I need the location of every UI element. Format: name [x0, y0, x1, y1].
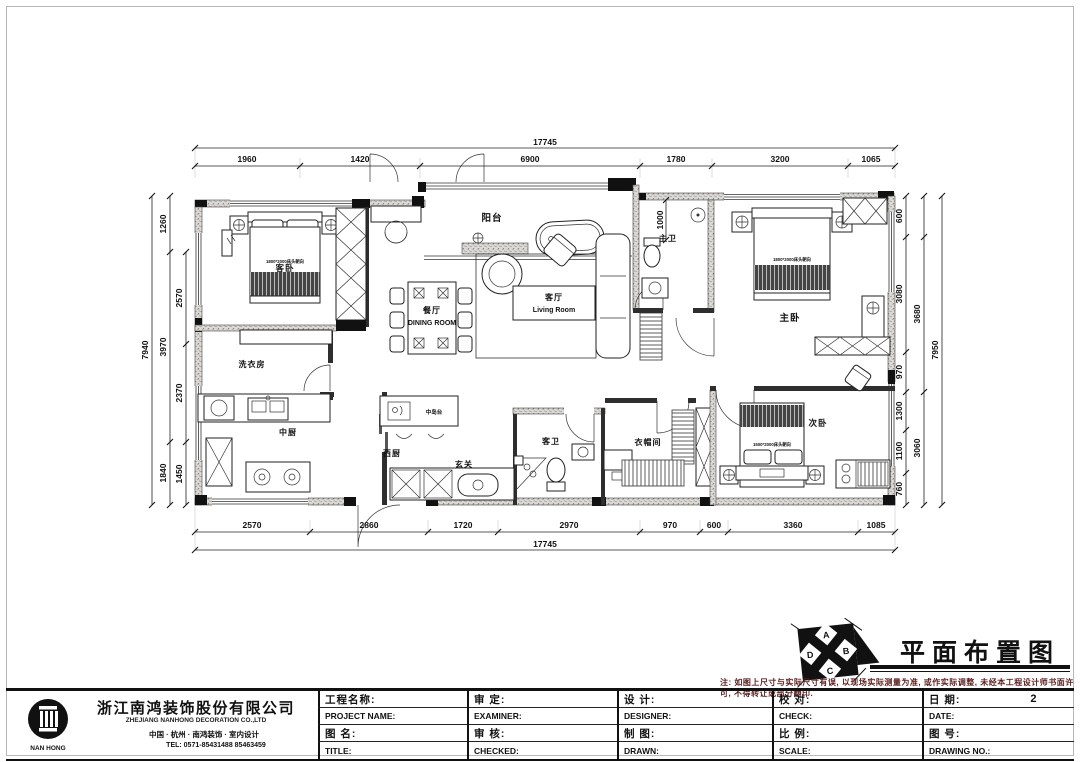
- dim-label: 3080: [894, 284, 904, 303]
- dim-label: 970: [894, 365, 904, 379]
- island-label: 中岛台: [426, 408, 443, 416]
- floor-plan: 阳台 1800*2000床头朝向 客卧: [0, 0, 1080, 690]
- field-designer-en: DESIGNER:: [617, 708, 772, 725]
- dim-label: 1260: [158, 214, 168, 233]
- dim-label: 1780: [667, 154, 686, 164]
- dim-label: 2970: [560, 520, 579, 530]
- company-address: 中国 · 杭州 · 南鸿装饰 · 室内设计: [92, 729, 316, 740]
- dim-label: 1450: [174, 464, 184, 483]
- laundry-label: 洗衣房: [239, 359, 266, 369]
- dim-label: 7950: [930, 340, 940, 359]
- field-title-cn: 图 名:: [318, 725, 467, 742]
- balcony-label: 阳台: [481, 212, 502, 224]
- field-designer-cn: 设 计:: [617, 691, 772, 708]
- balcony-door-arc: [456, 154, 484, 182]
- planter: [462, 243, 528, 254]
- dimension-chain-bottom: 2570 2860 1720 2970 970 600 3360 1085 17…: [192, 505, 898, 553]
- dim-label: 760: [894, 482, 904, 496]
- second-bedroom: 1500*2000床头朝向 次卧: [720, 403, 890, 488]
- dim-label: 3970: [158, 337, 168, 356]
- field-date-cn: 日 期:2: [922, 691, 1074, 708]
- dim-label: 7940: [140, 340, 150, 359]
- field-examiner-en: EXAMINER:: [467, 708, 617, 725]
- company-tel: TEL: 0571-85431488 85463459: [116, 742, 316, 749]
- dim-label: 600: [707, 520, 721, 530]
- dim-label: 2370: [174, 383, 184, 402]
- dim-label: 1085: [867, 520, 886, 530]
- guest-bath-label: 客卫: [541, 436, 560, 446]
- field-title-en: TITLE:: [318, 742, 467, 759]
- dim-label: 3200: [771, 154, 790, 164]
- field-project-name-en: PROJECT NAME:: [318, 708, 467, 725]
- field-scale-en: SCALE:: [772, 742, 922, 759]
- dim-label: 3360: [784, 520, 803, 530]
- master-bath: 主卫 1000: [642, 197, 705, 298]
- cloakroom-label: 衣帽间: [635, 437, 662, 447]
- dim-label: 1960: [238, 154, 257, 164]
- title-block-table: 工程名称: 审 定: 设 计: 校 对: 日 期:2 PROJECT NAME:…: [318, 691, 1074, 759]
- dim-label: 1720: [454, 520, 473, 530]
- company-panel: NAN HONG 浙江南鸿装饰股份有限公司 ZHEJIANG NANHONG D…: [6, 691, 318, 759]
- field-project-name-cn: 工程名称:: [318, 691, 467, 708]
- dim-label: 600: [894, 209, 904, 223]
- dining-room: 餐厅 DINING ROOM: [390, 282, 472, 354]
- dim-label: 1065: [862, 154, 881, 164]
- master-bed-note: 1800*2000床头朝向: [773, 256, 811, 263]
- dim-label: 1840: [158, 463, 168, 482]
- field-check-cn: 校 对:: [772, 691, 922, 708]
- master-bedroom: 1800*2000床头朝向 主卧: [732, 198, 890, 392]
- drawing-sheet: 阳台 1800*2000床头朝向 客卧: [0, 0, 1080, 762]
- field-checked-cn: 审 核:: [467, 725, 617, 742]
- dim-label: 3680: [912, 304, 922, 323]
- guest-bath: 客卫: [514, 436, 594, 491]
- balcony-door-arc: [370, 154, 398, 182]
- compass-flag: [854, 625, 880, 665]
- dim-label: 1100: [894, 442, 904, 461]
- field-date-en: DATE:: [922, 708, 1074, 725]
- second-bedroom-label: 次卧: [808, 418, 827, 428]
- dim-label: 3060: [912, 438, 922, 457]
- dim-label: 2860: [360, 520, 379, 530]
- field-check-en: CHECK:: [772, 708, 922, 725]
- field-scale-cn: 比 例:: [772, 725, 922, 742]
- dim-label: 1420: [351, 154, 370, 164]
- field-date-label: 日 期:: [929, 692, 960, 707]
- dim-label: 2570: [174, 288, 184, 307]
- western-kitchen: 中岛台 西厨: [380, 396, 514, 500]
- company-name-cn: 浙江南鸿装饰股份有限公司: [76, 697, 316, 718]
- dining-label-cn: 餐厅: [422, 305, 441, 315]
- title-block: NAN HONG 浙江南鸿装饰股份有限公司 ZHEJIANG NANHONG D…: [6, 688, 1074, 761]
- master-bedroom-label: 主卧: [779, 312, 800, 324]
- company-name-en: ZHEJIANG NANHONG DECORATION CO.,LTD: [76, 717, 316, 724]
- field-checked-en: CHECKED:: [467, 742, 617, 759]
- second-bed-note: 1500*2000床头朝向: [753, 441, 791, 448]
- living-label-en: Living Room: [533, 307, 575, 314]
- dining-label-en: DINING ROOM: [408, 320, 456, 327]
- dim-total-top: 17745: [533, 137, 557, 147]
- company-logo: NAN HONG: [22, 697, 74, 755]
- dimension-chain-right: 600 3080 970 1300 1100 760 3680 3060 795…: [894, 193, 945, 508]
- field-drawn-en: DRAWN:: [617, 742, 772, 759]
- field-drawing-no-cn: 图 号:: [922, 725, 1074, 742]
- title-underline-thick: [870, 665, 1070, 669]
- logo-text: NAN HONG: [30, 745, 65, 752]
- field-drawing-no-en: DRAWING NO.:: [922, 742, 1074, 759]
- dimension-chain-top: 1960 1420 6900 1780 3200 1065 17745: [192, 137, 898, 178]
- guest-bedroom-label: 客卧: [274, 263, 294, 273]
- laundry-room: 洗衣房: [239, 330, 333, 369]
- dim-label: 6900: [521, 154, 540, 164]
- dimension-chain-left: 7940 1260 3970 1840 2570 2370 1450: [140, 193, 189, 508]
- date-value: 2: [1030, 693, 1037, 705]
- dim-label: 2570: [243, 520, 262, 530]
- living-label-cn: 客厅: [544, 292, 563, 302]
- foyer-label: 玄关: [455, 459, 473, 469]
- drawing-title: 平面布置图: [900, 633, 1060, 669]
- field-examiner-cn: 审 定:: [467, 691, 617, 708]
- dim-label: 970: [663, 520, 677, 530]
- title-underline-thin: [870, 671, 1070, 672]
- hall-desk: [371, 206, 421, 243]
- dim-label: 1000: [655, 210, 665, 229]
- dim-total-bottom: 17745: [533, 539, 557, 549]
- field-drawn-cn: 制 图:: [617, 725, 772, 742]
- dim-label: 1300: [894, 401, 904, 420]
- guest-bedroom: 1800*2000床头朝向 客卧: [222, 208, 366, 331]
- western-kitchen-label: 西厨: [383, 448, 401, 458]
- chinese-kitchen-label: 中厨: [279, 427, 297, 437]
- chinese-kitchen: 中厨: [198, 394, 330, 492]
